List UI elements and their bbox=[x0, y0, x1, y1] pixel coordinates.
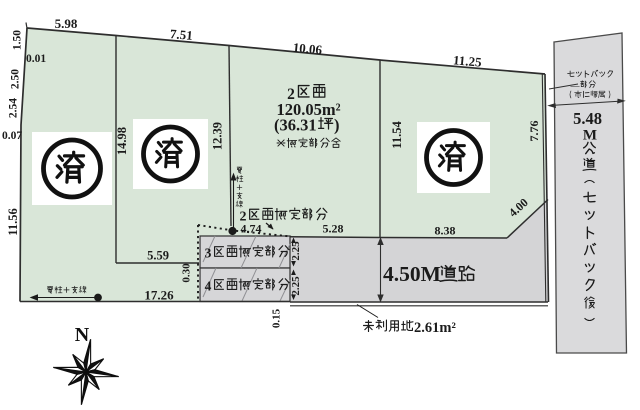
svg-text:11.54: 11.54 bbox=[390, 121, 404, 149]
svg-text:2.50: 2.50 bbox=[10, 69, 22, 89]
svg-text:3: 3 bbox=[205, 246, 212, 261]
svg-text:0.30: 0.30 bbox=[181, 263, 193, 283]
svg-text:4: 4 bbox=[205, 279, 212, 294]
svg-text:2.61m²: 2.61m² bbox=[414, 320, 456, 336]
svg-text:—: — bbox=[570, 81, 581, 91]
svg-text:2.54: 2.54 bbox=[8, 98, 20, 118]
svg-text:12.39: 12.39 bbox=[211, 122, 225, 150]
svg-text:14.98: 14.98 bbox=[115, 127, 129, 155]
svg-text:2: 2 bbox=[240, 210, 247, 225]
svg-text:1.50: 1.50 bbox=[12, 30, 24, 50]
svg-text:11.25: 11.25 bbox=[453, 52, 483, 69]
svg-text:5.28: 5.28 bbox=[323, 222, 344, 236]
svg-text:0.15: 0.15 bbox=[271, 308, 283, 328]
svg-text:10.06: 10.06 bbox=[292, 40, 323, 58]
svg-text:4.50M: 4.50M bbox=[383, 262, 441, 286]
svg-text:0.01: 0.01 bbox=[26, 53, 46, 65]
svg-text:5.98: 5.98 bbox=[55, 16, 78, 31]
svg-text:M: M bbox=[583, 128, 597, 144]
svg-text:0.07: 0.07 bbox=[2, 130, 22, 142]
svg-text:N: N bbox=[75, 324, 90, 346]
svg-text:5.48: 5.48 bbox=[573, 109, 602, 128]
svg-text:8.38: 8.38 bbox=[435, 224, 456, 238]
svg-text:5.59: 5.59 bbox=[147, 249, 169, 263]
svg-text:2.25: 2.25 bbox=[290, 276, 302, 296]
svg-text:7.51: 7.51 bbox=[169, 26, 193, 43]
svg-text:7.76: 7.76 bbox=[527, 121, 541, 142]
svg-text:): ) bbox=[334, 116, 340, 135]
svg-text:17.26: 17.26 bbox=[144, 288, 174, 303]
svg-text:2.25: 2.25 bbox=[290, 241, 302, 261]
svg-text:(36.31: (36.31 bbox=[274, 116, 317, 135]
svg-text:11.56: 11.56 bbox=[6, 208, 20, 235]
